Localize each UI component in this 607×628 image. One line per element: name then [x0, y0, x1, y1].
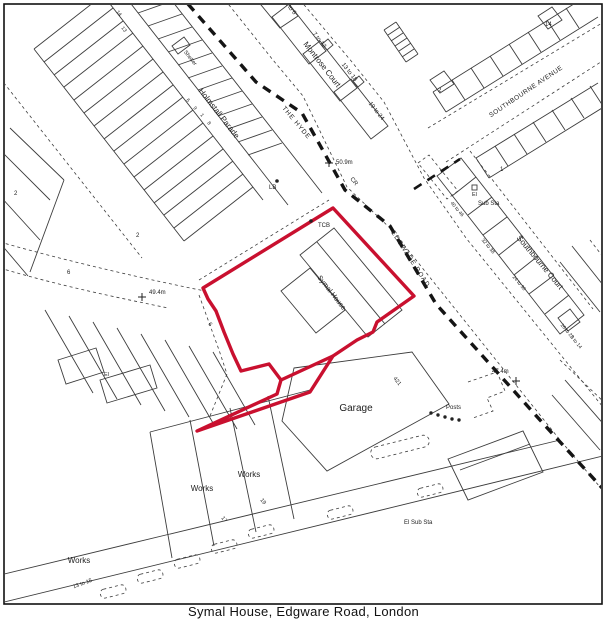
map-label: 47.4m [492, 369, 509, 375]
map-label: TCB [318, 223, 330, 229]
map-label: El Sub Sta [404, 520, 433, 526]
map-caption: Symal House, Edgware Road, London [0, 604, 607, 619]
map-label: Garage [339, 403, 373, 414]
map-label: Posts [446, 405, 461, 411]
map-label: El [472, 192, 477, 198]
map-label: Works [191, 484, 214, 493]
site-plan-page: Montrose Court1 to 67 to 1213 to 1819 to… [0, 0, 607, 628]
map-label: 14 [545, 22, 552, 28]
map-label: LB [269, 185, 276, 191]
map-label: Works [238, 470, 261, 479]
map-label: 50.9m [336, 160, 353, 166]
map-frame [4, 4, 602, 604]
map-label: El [104, 372, 109, 378]
map-label: Works [68, 556, 91, 565]
map-canvas: Montrose Court1 to 67 to 1213 to 1819 to… [0, 0, 607, 628]
map-label: 49.4m [149, 290, 166, 296]
map-label: Sub Sta [478, 201, 500, 207]
